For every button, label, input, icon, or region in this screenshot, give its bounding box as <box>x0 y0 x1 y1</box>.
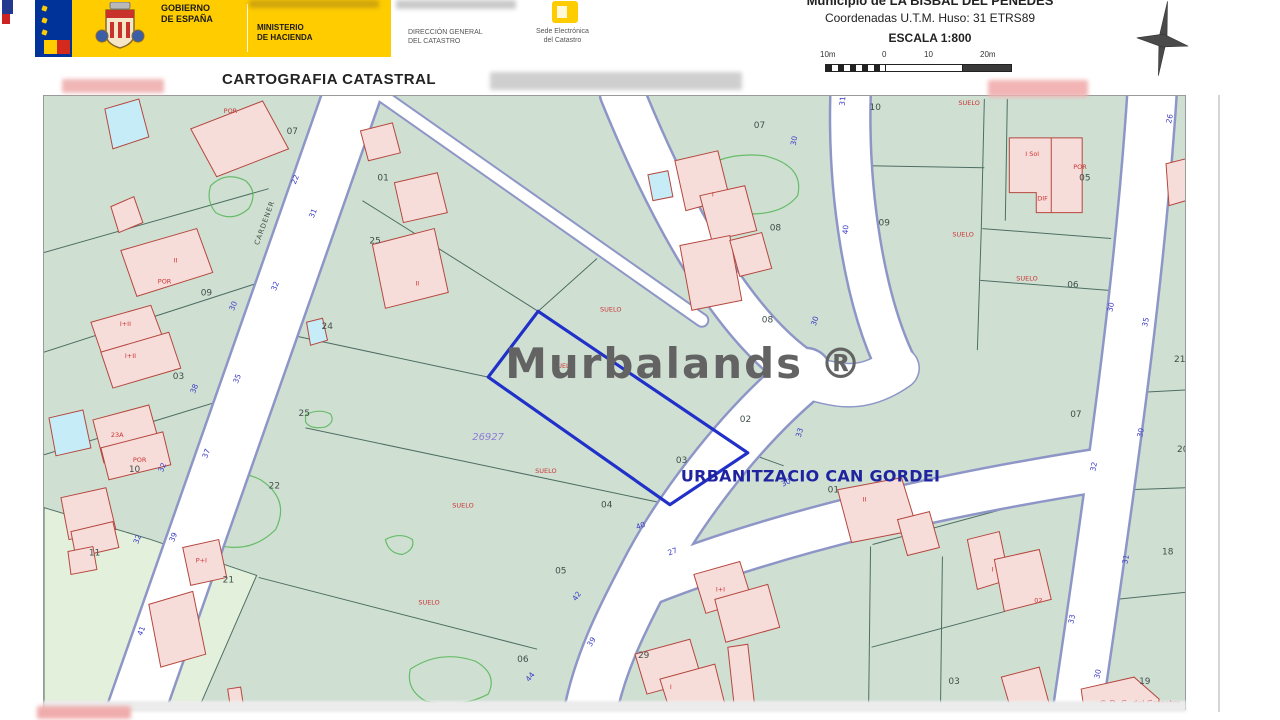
building-code-label: I <box>670 683 672 691</box>
building-code-label: I Sol <box>1025 150 1039 158</box>
document-header: GOBIERNO DE ESPAÑA MINISTERIO DE HACIEND… <box>0 0 1280 95</box>
map-bottom-cutoff-bar <box>43 701 1186 712</box>
cadastral-map-canvas: 0701092524032510221121070808020304050629… <box>43 95 1186 710</box>
redacted-text-yellow <box>249 0 379 8</box>
parcel-number-label: 25 <box>299 409 310 419</box>
north-arrow-icon <box>1128 0 1198 80</box>
street-number-label: 30 <box>227 300 239 312</box>
building-code-label: I+II <box>120 320 131 328</box>
municipality-title: Municipio de LA BISBAL DEL PENEDES <box>740 0 1120 10</box>
parcel-number-label: 05 <box>555 566 566 576</box>
building-code-label: 23A <box>111 431 124 439</box>
parcel-number-label: 07 <box>754 121 765 131</box>
building-code-label: SUELO <box>1016 274 1037 282</box>
parcel-number-label: 24 <box>322 322 334 332</box>
building-code-label: P+I <box>196 556 207 564</box>
sede-electronica-label: Sede Electrónica del Catastro <box>536 27 589 45</box>
building-code-label: POR <box>133 456 147 464</box>
street-number-label: 40 <box>841 224 851 234</box>
parcel-number-label: 19 <box>1139 677 1151 687</box>
urbanization-name-label: URBANITZACIO CAN GORDEI <box>681 467 940 486</box>
parcel-number-label: 03 <box>676 456 687 466</box>
parcel-number-label: 03 <box>948 677 959 687</box>
corner-mark-blue <box>2 0 13 14</box>
corner-mark-red <box>2 14 10 24</box>
parcel-number-label: 06 <box>517 655 529 665</box>
street-number-label: 33 <box>794 427 805 439</box>
watermark: Murbalands ® <box>505 339 863 388</box>
parcel-number-label: 10 <box>870 103 882 113</box>
building-code-label: I+II <box>125 352 136 360</box>
parcel-number-label: 02 <box>740 415 751 425</box>
parcel-number-label: 04 <box>601 501 613 511</box>
redacted-reference-gray <box>490 72 742 90</box>
building-code-label: II <box>415 279 419 287</box>
scalebar-tick: 10m <box>820 50 836 59</box>
building-code-label: POR <box>1073 163 1087 171</box>
parcel-number-label: 20 <box>1177 445 1185 455</box>
redacted-area-top-right <box>988 80 1088 97</box>
eu-flag-icon <box>35 0 72 57</box>
utm-coordinates-label: Coordenadas U.T.M. Huso: 31 ETRS89 <box>740 11 1120 25</box>
building-code-label: SUELO <box>952 231 973 239</box>
scale-label: ESCALA 1:800 <box>740 31 1120 45</box>
redacted-reference-pink <box>62 79 164 93</box>
building-code-label: DIF <box>1037 195 1048 203</box>
parcel-number-label: 29 <box>638 651 650 661</box>
building-code-label: SUELO <box>958 99 979 107</box>
building-code-label: I <box>991 565 993 573</box>
spain-coat-of-arms-icon <box>90 2 150 56</box>
building-code-label: SUELO <box>535 467 556 475</box>
building-code-label: I+I <box>716 585 725 593</box>
parcel-number-label: 18 <box>1162 548 1174 558</box>
redacted-text-gray <box>396 0 516 9</box>
parcel-number-label: 06 <box>1067 280 1079 290</box>
street-number-label: 31 <box>838 96 848 106</box>
building-code-label: SUELO <box>452 502 473 510</box>
building-code-label: 02 <box>1034 596 1042 604</box>
scalebar-tick: 20m <box>980 50 996 59</box>
parcel-number-label: 01 <box>377 174 388 184</box>
parcel-number-label: 01 <box>828 486 839 496</box>
ministerio-label: MINISTERIO DE HACIENDA <box>257 23 313 43</box>
page-title: CARTOGRAFIA CATASTRAL <box>222 71 452 88</box>
parcel-number-label: 11 <box>89 549 100 559</box>
parcel-number-label: 25 <box>369 237 380 247</box>
direccion-general-catastro-label: DIRECCIÓN GENERAL DEL CATASTRO <box>408 28 483 46</box>
scalebar-tick: 0 <box>882 50 886 59</box>
street-number-label: 30 <box>1135 427 1146 438</box>
street-number-label: 30 <box>809 315 821 327</box>
building-code-label: SUELO <box>600 305 621 313</box>
logo-divider <box>247 4 248 52</box>
redacted-area-bottom-left <box>37 706 131 719</box>
street-number-label: 44 <box>524 670 537 683</box>
street-number-label: 32 <box>1088 461 1099 472</box>
street-number-label: 42 <box>570 590 583 603</box>
parcel-number-label: 08 <box>762 315 774 325</box>
parcel-number-label: 08 <box>770 224 782 234</box>
gobierno-de-espana-label: GOBIERNO DE ESPAÑA <box>161 3 213 25</box>
parcel-number-label: 22 <box>269 482 280 492</box>
parcel-number-label: 21 <box>1174 355 1185 365</box>
street-number-label: 31 <box>1120 553 1131 564</box>
parcel-number-label: 03 <box>173 372 184 382</box>
parcel-number-label: 09 <box>879 219 891 229</box>
roads <box>135 96 1152 709</box>
government-logo-block: GOBIERNO DE ESPAÑA MINISTERIO DE HACIEND… <box>35 0 391 57</box>
building-code-label: POR <box>224 107 238 115</box>
scale-bar: 10m 0 10 20m <box>820 50 1020 74</box>
building-code-label: II <box>174 256 178 264</box>
building-code-label: I <box>712 191 714 199</box>
street-number-label: 30 <box>789 135 800 146</box>
sede-electronica-icon <box>552 1 578 23</box>
parcel-number-label: 21 <box>223 575 234 585</box>
parcel-number-label: 05 <box>1079 174 1090 184</box>
parcel-number-label: 07 <box>287 127 298 137</box>
street-number-label: 38 <box>188 382 200 394</box>
building-code-label: SUELO <box>418 598 439 606</box>
scalebar-tick: 10 <box>924 50 933 59</box>
parcel-reference-number: 26927 <box>472 432 504 443</box>
building-code-label: POR <box>158 277 172 285</box>
building-code-label: II <box>863 496 867 504</box>
parcel-number-label: 09 <box>201 288 213 298</box>
parcel-number-label: 07 <box>1070 410 1081 420</box>
page-edge-line <box>1218 86 1220 712</box>
parcel-number-label: 10 <box>129 465 141 475</box>
